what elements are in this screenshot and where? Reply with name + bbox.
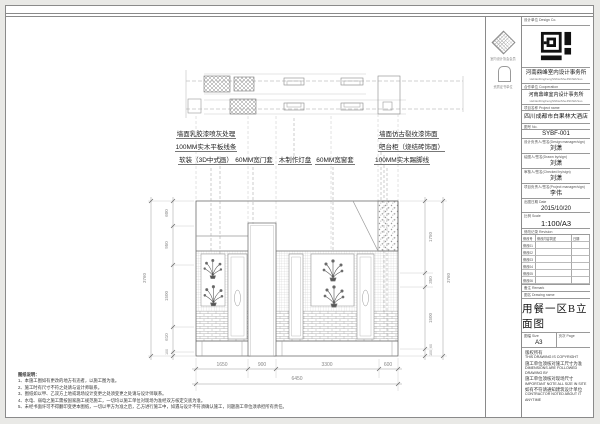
dim-right-3: 1500 bbox=[428, 305, 434, 331]
coop-name-cn: 河南鼎峰室内设计事务所 bbox=[522, 91, 590, 99]
page-cell: 页次 Page bbox=[557, 333, 591, 347]
dim-bottom-3: 3300 bbox=[312, 362, 342, 368]
drawing-no: SYBF-001 bbox=[522, 130, 590, 138]
annotation-right-3: 100MM实木踢脚线 bbox=[374, 156, 478, 165]
rev-row-desc bbox=[536, 256, 572, 263]
ceiling-strip bbox=[186, 70, 463, 118]
firm-logo-icon bbox=[540, 31, 572, 63]
annotation-right-2: 吧台柜（烧结砖饰面） bbox=[378, 143, 482, 152]
firm-name-row: 河南鼎峰室内设计事务所 HeNanDingFengShiNeiSheJiShiW… bbox=[522, 68, 590, 84]
dim-left-3: 1500 bbox=[164, 283, 170, 309]
designer-row: 设计负责人/签名(Design manager/sign) 刘潇 bbox=[522, 139, 590, 154]
project-name: 四川成都市白果林大酒店 bbox=[524, 113, 588, 121]
rev-row-desc bbox=[536, 270, 572, 277]
drawing-notes: 图纸说明： 1、本施工图如有更改的地方有违者，以施工图为准。 2、施工时有尺寸不… bbox=[18, 372, 480, 410]
rev-row-desc bbox=[536, 242, 572, 249]
drawing-no-row: SYBF-001 bbox=[522, 130, 590, 139]
firm-logo-row bbox=[522, 26, 590, 68]
annotation-window-frame: 60MM宽窗套 bbox=[314, 156, 356, 165]
annotation-door-frame: 60MM宽门套 bbox=[233, 156, 275, 165]
annotation-left-2: 100MM实木平板线条 bbox=[154, 143, 258, 152]
rev-row-date bbox=[572, 242, 590, 249]
dim-left-1: 600 bbox=[164, 200, 170, 226]
rev-row-desc bbox=[536, 263, 572, 270]
dim-right-2: 350 bbox=[428, 267, 434, 293]
checker-row: 审核人/签名(Checked by/sign) 刘潇 bbox=[522, 169, 590, 184]
rev-row-desc bbox=[536, 249, 572, 256]
rev-row-date bbox=[572, 256, 590, 263]
dim-bottom-1: 1650 bbox=[207, 362, 237, 368]
drawing-name-label-row: 图名 Drawing name bbox=[522, 292, 590, 299]
certificate-stamp-icon bbox=[498, 66, 511, 82]
dim-bottom-2: 900 bbox=[247, 362, 277, 368]
rev-col-header: 日期(Date) bbox=[572, 235, 590, 242]
title-block: 设计单位 Design Co. 河南鼎峰室内设计事务所 HeNanDingFen… bbox=[522, 17, 590, 416]
drawing-sheet-page: { "stamps": { "assoc_caption": "室内设计协会会员… bbox=[0, 0, 600, 424]
certificate-stamp-caption: 资质证书单位 bbox=[485, 84, 521, 89]
drawing-name-row: 用餐一区B立面图 bbox=[522, 299, 590, 333]
rev-row-no: 修改03 △ bbox=[522, 256, 536, 263]
date-value: 2015/10/20 bbox=[522, 205, 590, 213]
dim-right-1: 1750 bbox=[428, 224, 434, 250]
size-cell: 图幅 Size A3 bbox=[522, 333, 557, 347]
copyright-block: 版权所有 THIS DRAWING IS COPYRIGHT 施工单位须核对施工… bbox=[522, 348, 590, 416]
dim-left-2: 950 bbox=[164, 232, 170, 258]
revision-table: 修改号 修改内容简述(Description) 日期(Date) 修改01 △ … bbox=[522, 235, 590, 285]
drawn-by-name: 刘潇 bbox=[522, 160, 590, 168]
project-name-row: 四川成都市白果林大酒店 bbox=[522, 111, 590, 124]
project-manager-row: 项目负责人/签名(Project manager/sign) 李伟 bbox=[522, 184, 590, 199]
rev-row-date bbox=[572, 263, 590, 270]
dim-bottom-4: 600 bbox=[373, 362, 403, 368]
rev-row-no: 修改04 △ bbox=[522, 263, 536, 270]
firm-name-cn: 河南鼎峰室内设计事务所 bbox=[522, 69, 590, 77]
coop-name-en: HeNanDingFengShiNeiSheJiShiWuSuo bbox=[522, 99, 590, 103]
rev-row-no: 修改06 △ bbox=[522, 277, 536, 284]
dim-right-total: 3760 bbox=[446, 265, 452, 291]
annotation-right-1: 墙面仿古裂纹漆饰面 bbox=[378, 130, 482, 139]
note-line: 5、未经书面许可不得翻印变更本图纸，一切以甲方为准之后，乙方进行施工中，如遇与设… bbox=[18, 404, 480, 410]
coop-name-row: 河南鼎峰室内设计事务所 HeNanDingFengShiNeiSheJiShiW… bbox=[522, 90, 590, 105]
scale-row: 比例 Scale 1:100/A3 bbox=[522, 213, 590, 229]
size-value: A3 bbox=[522, 339, 556, 347]
annotation-left-1: 墙面乳胶漆喷灰处理 bbox=[154, 130, 258, 139]
size-page-row: 图幅 Size A3 页次 Page bbox=[522, 333, 590, 348]
scale-value: 1:100/A3 bbox=[522, 219, 590, 229]
dim-left-total: 3760 bbox=[142, 265, 148, 291]
drawing-name: 用餐一区B立面图 bbox=[522, 299, 590, 332]
association-stamp-caption: 室内设计协会会员 bbox=[485, 56, 521, 61]
checker-name: 刘潇 bbox=[522, 175, 590, 183]
drawn-by-row: 绘图人/签名(Drawn by/sign) 刘潇 bbox=[522, 154, 590, 169]
title-block-header: 设计单位 Design Co. bbox=[522, 17, 590, 26]
dim-left-5: 100 bbox=[164, 339, 170, 365]
date-row: 出图日期 Date 2015/10/20 bbox=[522, 199, 590, 213]
rev-row-no: 修改05 △ bbox=[522, 270, 536, 277]
rev-col-header: 修改号 bbox=[522, 235, 536, 242]
sheet-frame: 墙面乳胶漆喷灰处理 100MM实木平板线条 软装（3D中式画） 60MM宽门套 … bbox=[5, 5, 594, 418]
annotation-lamp-panel: 木制作灯盘 bbox=[274, 156, 316, 165]
designer-name: 刘潇 bbox=[522, 145, 590, 153]
firm-name-en: HeNanDingFengShiNeiSheJiShiWuSuo bbox=[522, 77, 590, 81]
project-manager-name: 李伟 bbox=[522, 190, 590, 198]
dim-right-5: 100 bbox=[428, 340, 434, 366]
rev-row-no: 修改02 △ bbox=[522, 249, 536, 256]
elevation-view bbox=[196, 201, 398, 356]
rev-row-date bbox=[572, 270, 590, 277]
rev-col-header: 修改内容简述(Description) bbox=[536, 235, 572, 242]
rev-row-desc bbox=[536, 277, 572, 284]
rev-row-date bbox=[572, 249, 590, 256]
remark-row: 备注 Remark bbox=[522, 285, 590, 292]
rev-row-no: 修改01 △ bbox=[522, 242, 536, 249]
rev-row-date bbox=[572, 277, 590, 284]
